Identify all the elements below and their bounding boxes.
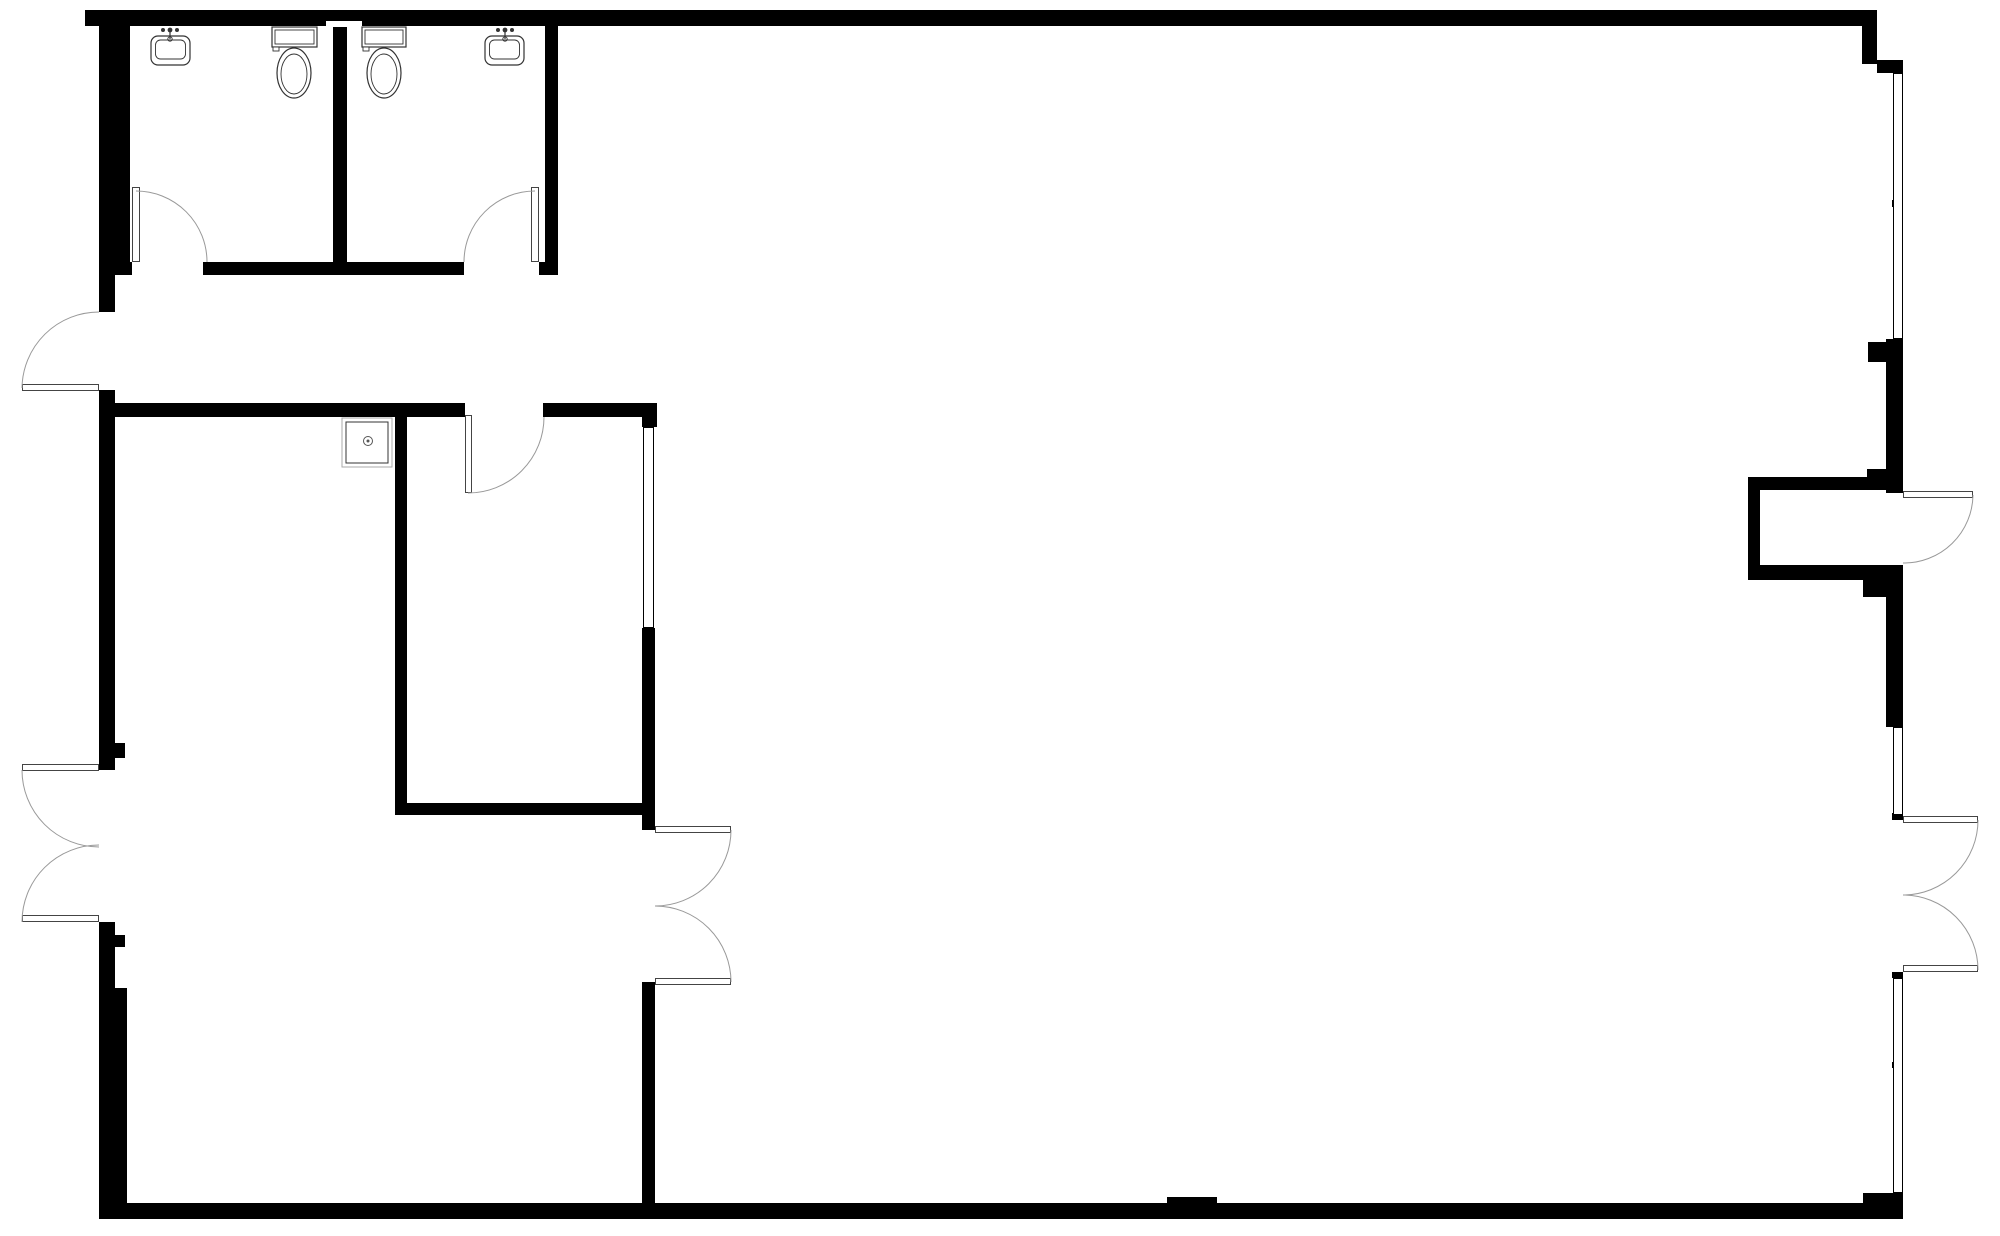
floor-plan [0,0,2000,1236]
entry-vestibule [1760,490,1893,565]
top-wall-vent-notch [326,21,362,27]
entry-door-leaf [1904,492,1973,498]
utility-sink-outer [342,418,392,467]
bottom-wall-bump [1167,1197,1217,1204]
storefront-window-mid [1894,728,1903,815]
inner-room-door-leaf [466,416,472,493]
utility-sink [342,418,392,467]
toilet-seat-hinge [273,47,279,51]
exterior-left-wall-restroom [99,10,130,262]
exterior-bottom-wall [99,1203,1903,1219]
restroom-divider-wall [333,27,347,275]
interior-wall-v2-lower [642,982,655,1203]
exterior-right-wall-d [1886,1193,1903,1219]
restroom-bottom-wall-b [203,262,333,275]
lower-left-room [115,417,395,1203]
west-double-door-leaf-upper [23,765,99,771]
sink-faucet-handle [168,28,173,33]
exterior-topright-step-v [1862,26,1877,64]
interior-wall-v1 [395,403,407,815]
interior-wall-h-a [99,403,465,417]
restroom-bottom-wall-a [99,262,132,275]
vestibule-top-wall [1748,477,1888,490]
toilet-seat-hinge [363,47,369,51]
inner-storage-room [407,417,642,803]
east-double-door-leaf-upper [1904,817,1978,823]
sink-faucet-handle [503,28,508,33]
exterior-left-wall-b [99,390,115,770]
main-hall [655,26,1886,1203]
west-double-door-leaf-lower [23,916,99,922]
exterior-right-wall-c [1886,580,1903,727]
sink-faucet-handle [510,28,514,32]
left-door-nub-upper [115,743,125,758]
sink-faucet-handle [161,28,165,32]
interior-corner-block [642,403,657,427]
corridor [115,275,655,403]
west-exit-door-arc [22,312,99,388]
exterior-topright-step-h [1877,60,1903,73]
west-exit-door-leaf [23,385,99,391]
interior-window [644,428,654,628]
west-double-door-arc-upper [22,770,99,847]
sink-faucet-handle [175,28,179,32]
interior-double-door-leaf-lower [656,979,731,985]
exterior-left-wall-c [99,922,115,988]
east-double-door-arc-lower [1903,895,1978,970]
interior-wall-h-b [543,403,657,417]
west-double-door-arc-lower [22,845,99,922]
restroom-bottom-wall-c [347,262,464,275]
vestibule-left-wall [1748,477,1760,580]
right-wall-jamb-a [1892,565,1903,580]
floor-plan-canvas [0,0,2000,1236]
interior-wall-v2-upper [642,628,655,830]
east-double-door-leaf-lower [1904,966,1978,972]
restroom-left-door-leaf [133,188,140,262]
restroom-right-door-leaf [532,188,539,262]
restroom-right-wall [545,10,558,275]
storefront-window-upper [1894,74,1903,339]
right-wall-jamb-b [1892,972,1903,978]
toilet-bowl-outer [367,48,401,98]
utility-sink-drain-dot [367,440,370,443]
toilet-bowl-outer [277,48,311,98]
exterior-right-wall-b [1886,477,1903,493]
storefront-window-lower [1894,979,1903,1193]
exterior-left-wall-d [99,988,127,1219]
right-wall-notch-a [1868,342,1886,362]
entry-door-arc [1903,495,1973,563]
interior-double-door-leaf-upper [656,827,731,833]
left-door-nub-lower [115,935,125,947]
east-double-door-arc-upper [1903,820,1978,895]
restroom-bottom-wall-d [539,262,558,275]
exterior-right-wall-a [1886,339,1903,477]
inner-room-bottom-wall [395,803,643,815]
vestibule-bottom-wall [1748,565,1893,580]
right-wall-notch-c [1863,580,1886,597]
sink-faucet-handle [496,28,500,32]
